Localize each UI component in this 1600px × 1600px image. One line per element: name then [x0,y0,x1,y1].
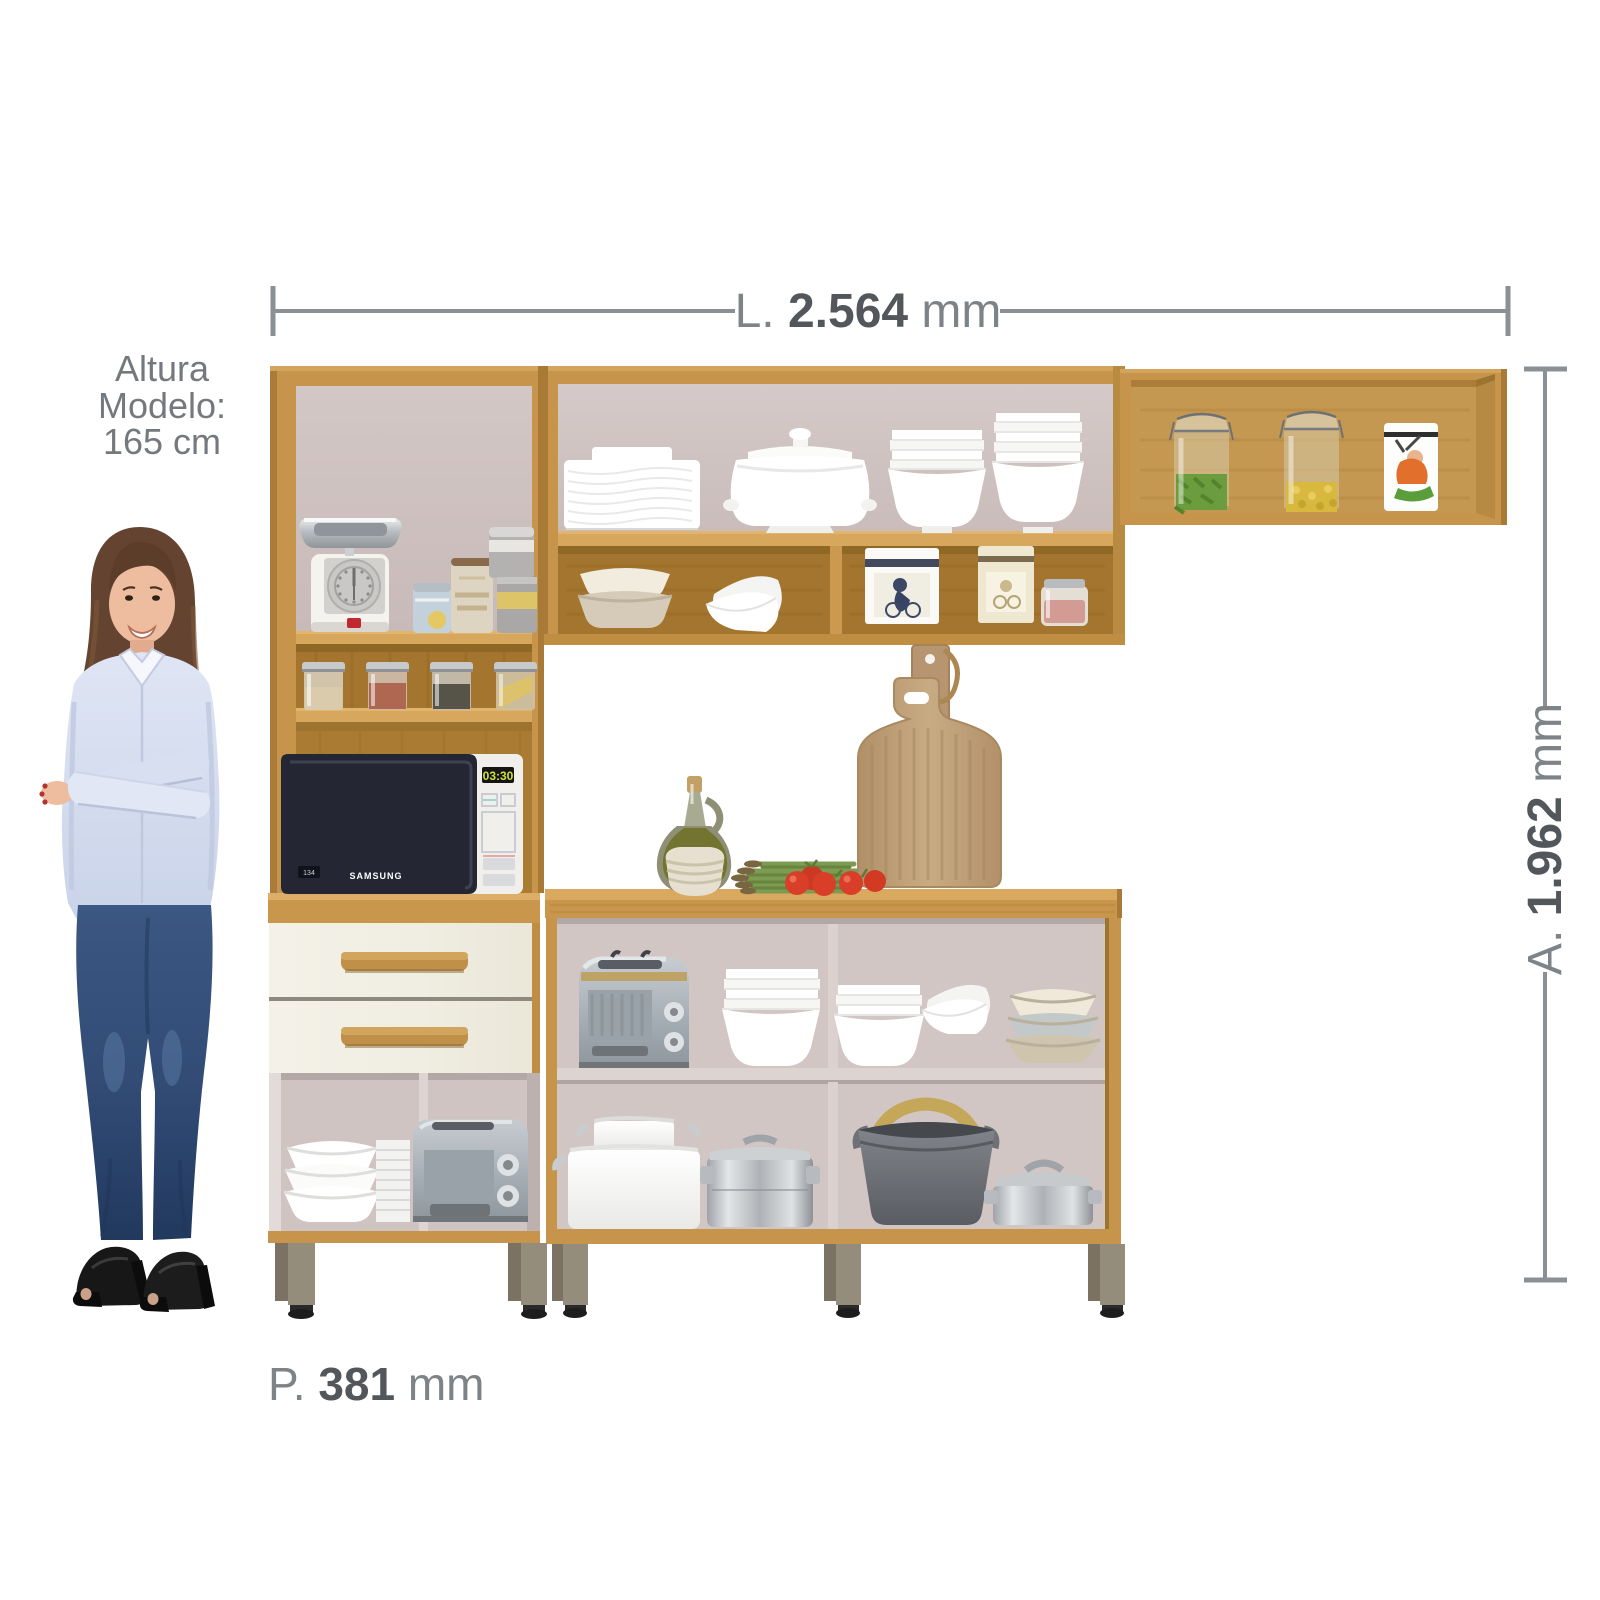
svg-text:A. 1.962 mm: A. 1.962 mm [1519,703,1572,975]
svg-text:P. 381 mm: P. 381 mm [268,1358,484,1410]
svg-text:165 cm: 165 cm [103,421,221,462]
svg-text:134: 134 [303,870,315,877]
svg-text:SAMSUNG: SAMSUNG [349,871,402,881]
svg-text:03:30: 03:30 [483,769,514,783]
svg-text:Modelo:: Modelo: [98,385,226,426]
svg-text:L. 2.564 mm: L. 2.564 mm [735,285,1002,338]
svg-text:Altura: Altura [115,348,210,389]
